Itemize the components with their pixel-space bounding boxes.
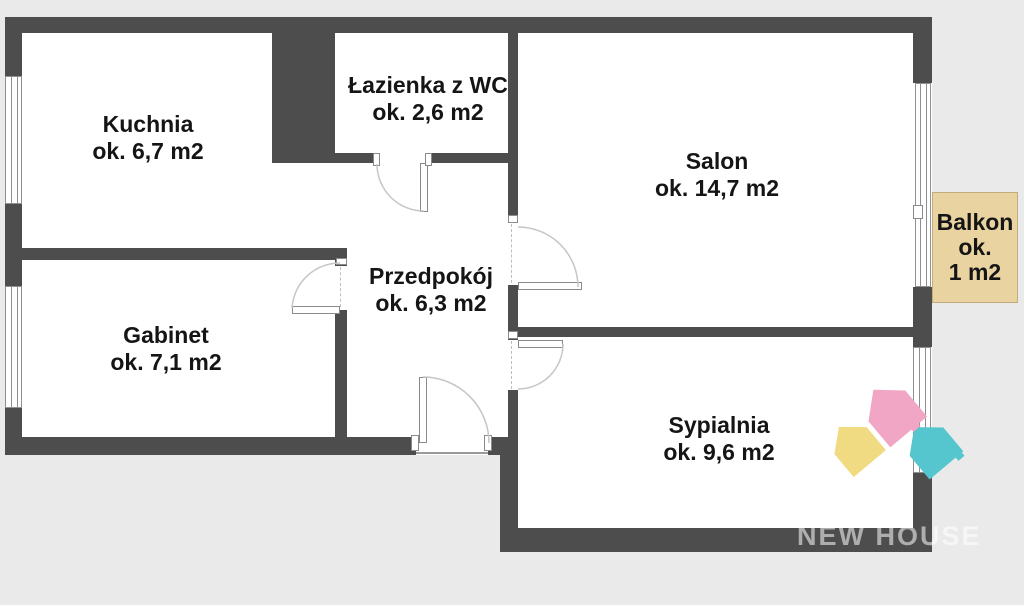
floor-plan: Balkon ok. 1 m2 (0, 0, 1024, 605)
watermark-text: NEW HOUSE (797, 521, 982, 552)
agency-logo (0, 0, 1024, 605)
